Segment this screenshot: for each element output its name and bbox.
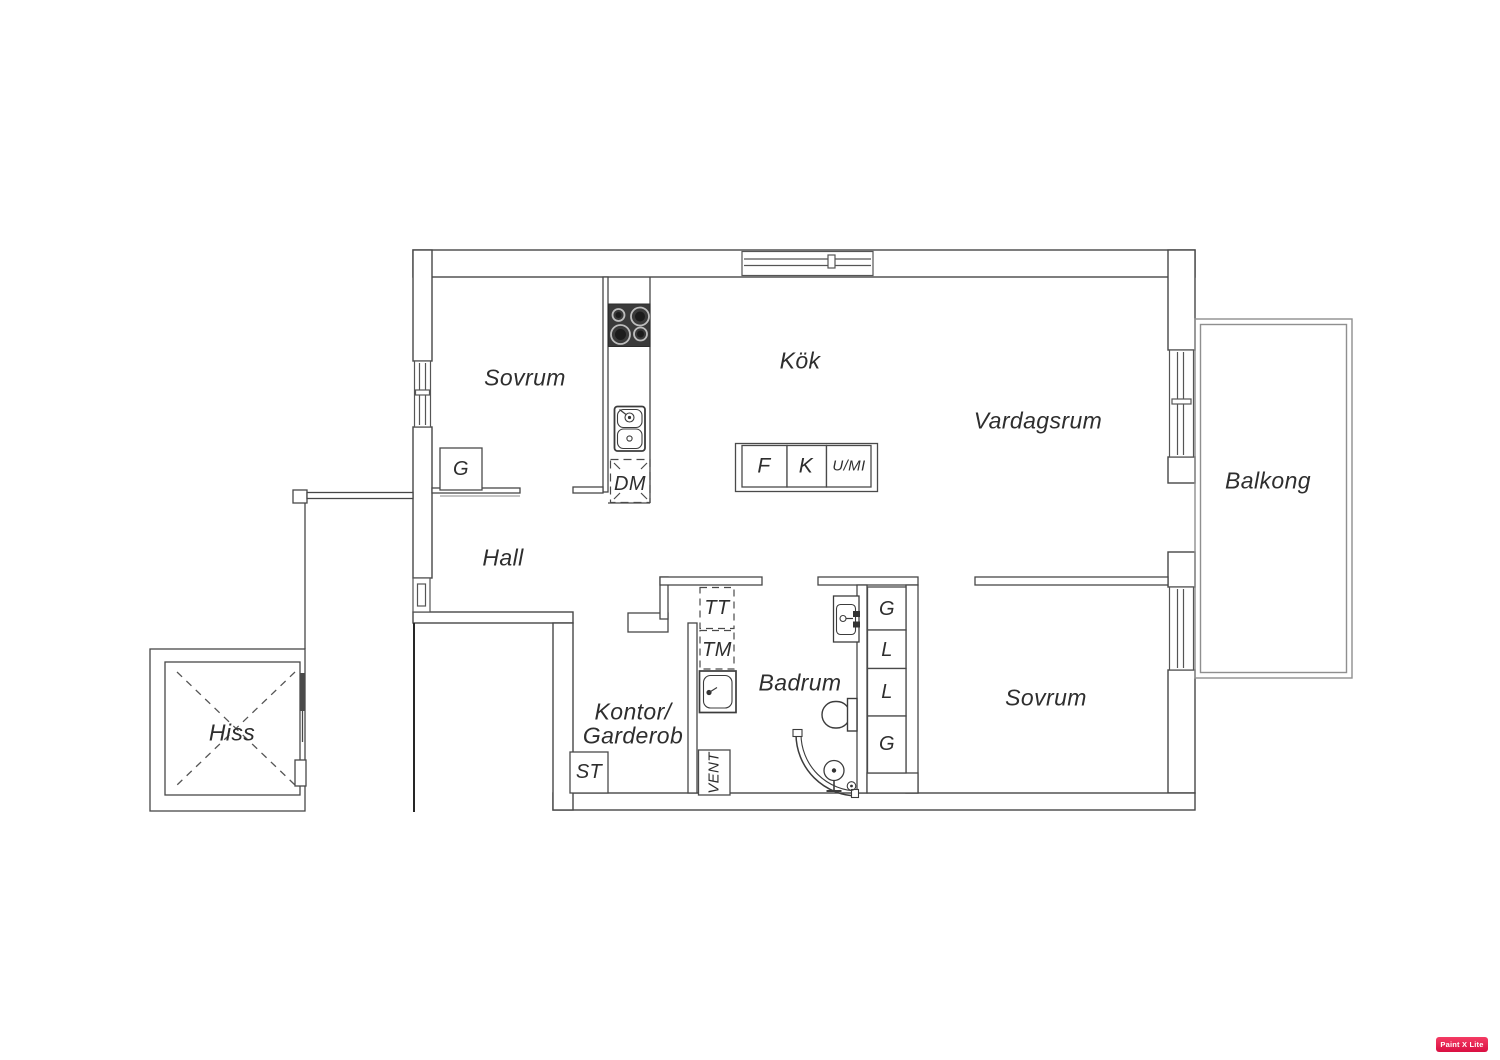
laundry-sink-icon — [700, 671, 737, 713]
window-top-kitchen — [742, 252, 873, 276]
corridor-elevator — [150, 490, 414, 812]
balcony-outline — [1195, 319, 1352, 678]
wall-bathroom-top-left — [660, 577, 762, 585]
stove-icon — [609, 304, 651, 347]
corridor-wall-endcap — [293, 490, 307, 503]
wall-right-2 — [1168, 457, 1195, 483]
wall-right-4 — [1168, 670, 1195, 793]
wall-right-1 — [1168, 250, 1195, 350]
wall-right-3 — [1168, 552, 1195, 587]
entry-door-jamb — [413, 578, 430, 612]
wall-bathroom-top-right — [818, 577, 918, 585]
elevator-door-pocket — [295, 760, 306, 786]
wall-bedroom1-bottom-stub — [573, 487, 603, 493]
label-closet-g1: G — [879, 599, 895, 619]
wall-bedroom2-top — [975, 577, 1168, 585]
label-vent: VENT — [707, 752, 722, 794]
office-label-line1: Kontor/ — [583, 700, 683, 724]
room-label-hall: Hall — [482, 547, 523, 570]
elevator-door-icon — [300, 673, 305, 711]
label-washing-machine: TM — [702, 640, 732, 660]
wall-bedroom1-right — [603, 277, 608, 492]
window-right-bedroom2 — [1170, 587, 1194, 670]
wall-left-mid — [413, 427, 432, 578]
label-fridge: F — [757, 456, 770, 477]
room-label-office-wardrobe: Kontor/ Garderob — [583, 700, 683, 749]
floor-plan: Sovrum Kök Vardagsrum Balkong Hall Konto… — [0, 0, 1500, 1060]
wall-bedroom2-left — [906, 585, 918, 793]
label-closet-l2: L — [881, 682, 893, 702]
shower-icon — [793, 730, 859, 798]
floor-plan-drawing — [0, 0, 1500, 1060]
room-label-bedroom-top: Sovrum — [484, 367, 566, 390]
window-left-bedroom1 — [415, 361, 431, 427]
wall-hall-bottom — [413, 612, 573, 623]
room-label-living-room: Vardagsrum — [974, 410, 1102, 433]
room-label-kitchen: Kök — [780, 350, 821, 373]
wall-bottom — [553, 793, 1195, 810]
wall-office-bathroom-divider — [688, 623, 697, 793]
room-label-balcony: Balkong — [1225, 470, 1311, 493]
label-tumble-dryer: TT — [704, 598, 729, 618]
watermark-badge: Paint X Lite — [1436, 1037, 1488, 1052]
room-label-bathroom: Badrum — [759, 672, 842, 695]
washbasin-icon — [834, 596, 861, 642]
room-label-bedroom-right: Sovrum — [1005, 687, 1087, 710]
wall-left-upper — [413, 250, 432, 361]
label-closet-g2: G — [879, 734, 895, 754]
label-closet-l1: L — [881, 640, 893, 660]
label-dishwasher: DM — [614, 474, 646, 494]
kitchen-sink-icon — [615, 407, 646, 452]
room-label-elevator: Hiss — [209, 722, 255, 745]
balcony-railing-outer — [1195, 319, 1352, 678]
window-right-living — [1170, 350, 1194, 457]
corridor-wall — [307, 493, 413, 499]
office-label-line2: Garderob — [583, 724, 683, 748]
balcony-railing-inner — [1201, 325, 1347, 673]
label-hall-closet: G — [453, 459, 469, 479]
exterior-walls — [413, 250, 1195, 810]
wall-below-closets — [867, 773, 918, 793]
toilet-icon — [822, 699, 857, 732]
label-freezer: K — [799, 456, 813, 477]
label-oven-micro: U/MI — [832, 459, 865, 474]
label-cleaning-closet: ST — [576, 762, 602, 782]
